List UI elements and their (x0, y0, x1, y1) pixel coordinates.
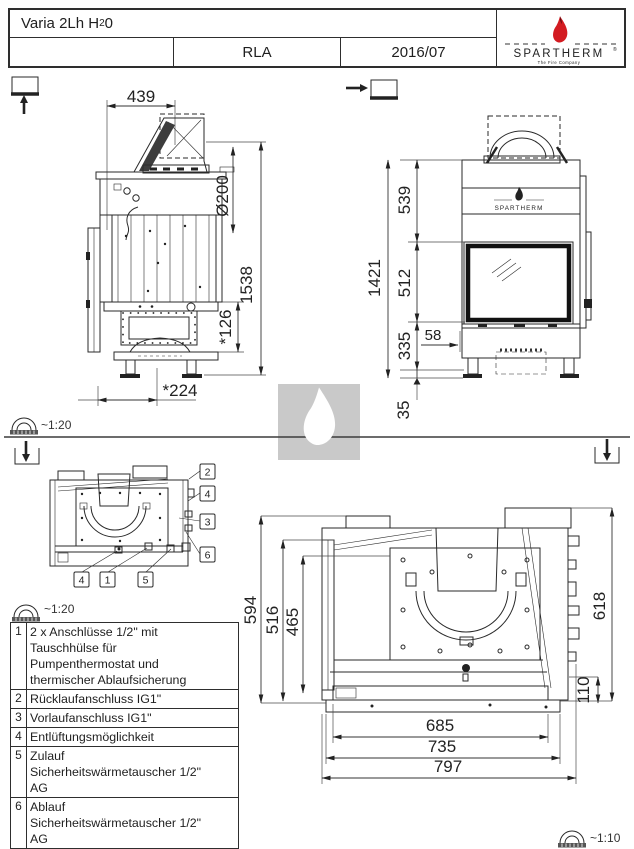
svg-text:6: 6 (205, 550, 211, 562)
view-direction-up-icon (11, 77, 39, 114)
callout-6: 6 (200, 547, 215, 562)
dim-top-width-inner: 685 (426, 716, 454, 735)
front-brand-label: SPARTHERM (495, 205, 544, 212)
svg-text:4: 4 (205, 489, 211, 501)
scale-icon-side-view (10, 418, 38, 435)
dim-side-total-height: 1538 (237, 266, 256, 304)
dim-top-depth-mid: 516 (263, 606, 282, 634)
dim-front-hood-height: 539 (395, 186, 414, 214)
type-code: RLA (174, 38, 341, 66)
dim-top-depth-inner: 465 (283, 608, 302, 636)
dim-top-offset-right: 110 (574, 676, 593, 703)
legend-table: 1 2 x Anschlüsse 1/2" mit Tauschhülse fü… (10, 622, 239, 849)
legend-row-4: 4 Entlüftungsmöglichkeit (11, 727, 238, 746)
legend-text: Zulauf Sicherheitswärmetauscher 1/2" AG (27, 747, 238, 797)
legend-row-2: 2 Rücklaufanschluss IG1" (11, 689, 238, 708)
scale-icon-top-view-small (12, 605, 40, 622)
brand-logo: SPARTHERM ® The Fire Company (497, 10, 624, 66)
dim-side-top-width: 439 (127, 87, 155, 106)
legend-num: 5 (11, 747, 27, 797)
scale-icon-top-view-large (558, 831, 586, 848)
title-block-empty-cell (10, 38, 174, 66)
view-direction-down-right-icon (595, 439, 619, 463)
callout-4-right: 4 (200, 486, 215, 501)
legend-text: Vorlaufanschluss IG1" (27, 709, 238, 727)
dim-front-foot-height: 35 (394, 401, 413, 420)
svg-text:4: 4 (79, 575, 85, 587)
svg-text:5: 5 (143, 575, 149, 587)
legend-row-6: 6 Ablauf Sicherheitswärmetauscher 1/2" A… (11, 797, 238, 848)
revision-date: 2016/07 (341, 38, 497, 66)
dim-front-glass-offset: 58 (425, 327, 442, 344)
scale-label-top-view-small: ~1:20 (44, 602, 75, 616)
legend-num: 6 (11, 798, 27, 848)
brand-registered-mark: ® (613, 46, 617, 53)
dim-front-base-height: 335 (395, 332, 414, 360)
dim-front-glass-height: 512 (395, 269, 414, 297)
callout-4-bottom: 4 (74, 572, 89, 587)
side-view-drawing: 439 Ø200 1538 *126 *224 (78, 87, 266, 406)
svg-text:2: 2 (205, 467, 211, 479)
brand-logo-graphic: SPARTHERM ® The Fire Company (497, 10, 624, 66)
dim-top-width-mid: 735 (428, 737, 456, 756)
scale-label-side-view: ~1:20 (41, 418, 72, 432)
model-name-pre: Varia 2Lh H (21, 15, 99, 32)
dim-front-total-height: 1421 (365, 259, 384, 297)
brand-tagline: The Fire Company (538, 60, 581, 65)
top-view-small-drawing: 2 4 3 6 4 1 5 (50, 464, 215, 587)
legend-num: 1 (11, 623, 27, 689)
legend-text: Entlüftungsmöglichkeit (27, 728, 238, 746)
front-brand-flame-icon (515, 187, 522, 201)
model-name-post: 0 (105, 15, 113, 32)
legend-num: 3 (11, 709, 27, 727)
front-view-drawing: SPARTHERM 1421 539 512 335 (365, 116, 592, 419)
model-name: Varia 2Lh H20 (10, 10, 497, 38)
legend-row-3: 3 Vorlaufanschluss IG1" (11, 708, 238, 727)
datasheet-page: ~1:20 ~1:20 ~1:10 439 Ø200 1538 *126 (0, 0, 634, 849)
callout-1: 1 (100, 572, 115, 587)
brand-name: SPARTHERM (514, 48, 605, 60)
dim-top-width-total: 797 (434, 757, 462, 776)
dim-top-depth-total: 594 (241, 596, 260, 624)
legend-text: Rücklaufanschluss IG1" (27, 690, 238, 708)
view-direction-right-icon (346, 80, 398, 98)
view-direction-down-left-icon (15, 441, 39, 464)
top-view-large-drawing: 594 516 465 618 110 685 735 797 (241, 508, 612, 784)
svg-text:1: 1 (105, 575, 111, 587)
dim-top-height-right: 618 (590, 592, 609, 620)
callout-5: 5 (138, 572, 153, 587)
legend-row-1: 1 2 x Anschlüsse 1/2" mit Tauschhülse fü… (11, 623, 238, 689)
scale-label-top-view-large: ~1:10 (590, 831, 621, 845)
callout-3: 3 (200, 514, 215, 529)
dim-side-base-height: *126 (216, 310, 235, 345)
callout-2: 2 (200, 464, 215, 479)
legend-num: 2 (11, 690, 27, 708)
legend-num: 4 (11, 728, 27, 746)
legend-row-5: 5 Zulauf Sicherheitswärmetauscher 1/2" A… (11, 746, 238, 797)
svg-text:3: 3 (205, 517, 211, 529)
legend-text: 2 x Anschlüsse 1/2" mit Tauschhülse für … (27, 623, 238, 689)
legend-text: Ablauf Sicherheitswärmetauscher 1/2" AG (27, 798, 238, 848)
dim-side-base-depth: *224 (163, 381, 198, 400)
title-block: Varia 2Lh H20 RLA 2016/07 SPARTHERM ® Th… (8, 8, 626, 68)
